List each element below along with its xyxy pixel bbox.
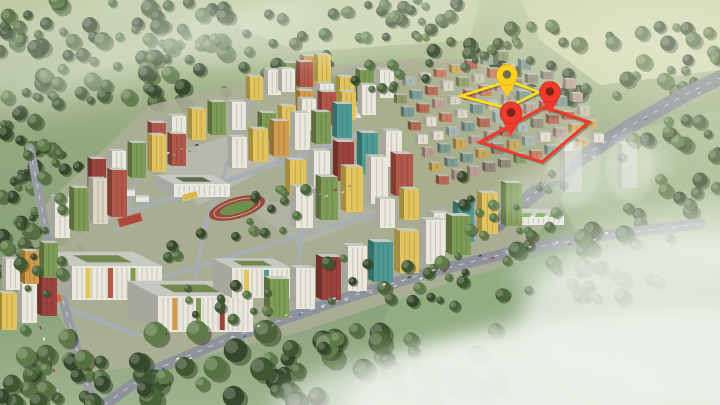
apartment-tower xyxy=(208,100,226,135)
townhouse xyxy=(429,162,442,171)
market-pavilion xyxy=(136,195,149,202)
pin-shadow xyxy=(507,134,521,139)
aerial-masterplan-render xyxy=(0,0,720,405)
apartment-tower xyxy=(269,119,289,156)
townhouse xyxy=(444,157,457,167)
apartment-tower xyxy=(399,187,419,220)
apartment-tower xyxy=(366,154,388,204)
apartment-tower xyxy=(278,67,295,92)
townhouse xyxy=(422,146,435,157)
scene-svg xyxy=(0,0,720,405)
apartment-tower xyxy=(290,111,310,150)
pin-shadow xyxy=(503,95,517,100)
apartment-tower xyxy=(69,186,89,231)
pin-hole xyxy=(507,108,516,117)
apartment-tower xyxy=(311,110,331,144)
pin-hole xyxy=(546,87,554,95)
apartment-tower xyxy=(296,60,313,87)
apartment-tower xyxy=(375,197,395,228)
apartment-tower xyxy=(128,141,146,178)
townhouse xyxy=(436,175,449,185)
apartment-tower xyxy=(341,164,363,212)
pin-hole xyxy=(503,70,511,78)
townhouse xyxy=(460,152,473,162)
apartment-tower xyxy=(368,239,393,282)
townhouse xyxy=(415,133,428,144)
apartment-tower xyxy=(228,100,246,130)
apartment-tower xyxy=(332,102,352,138)
apartment-tower xyxy=(168,132,186,166)
townhouse xyxy=(437,143,450,154)
pin-shadow xyxy=(546,112,560,117)
apartment-tower xyxy=(227,135,247,168)
apartment-tower xyxy=(148,133,166,172)
townhouse xyxy=(408,120,421,130)
apartment-tower xyxy=(188,107,206,140)
apartment-tower xyxy=(290,265,315,309)
apartment-tower xyxy=(316,174,338,220)
townhouse xyxy=(482,161,495,171)
apartment-tower xyxy=(88,177,108,224)
apartment-tower xyxy=(246,75,263,100)
apartment-tower xyxy=(0,291,17,330)
townhouse xyxy=(467,165,480,176)
apartment-tower xyxy=(248,127,268,162)
apartment-tower xyxy=(107,168,127,217)
